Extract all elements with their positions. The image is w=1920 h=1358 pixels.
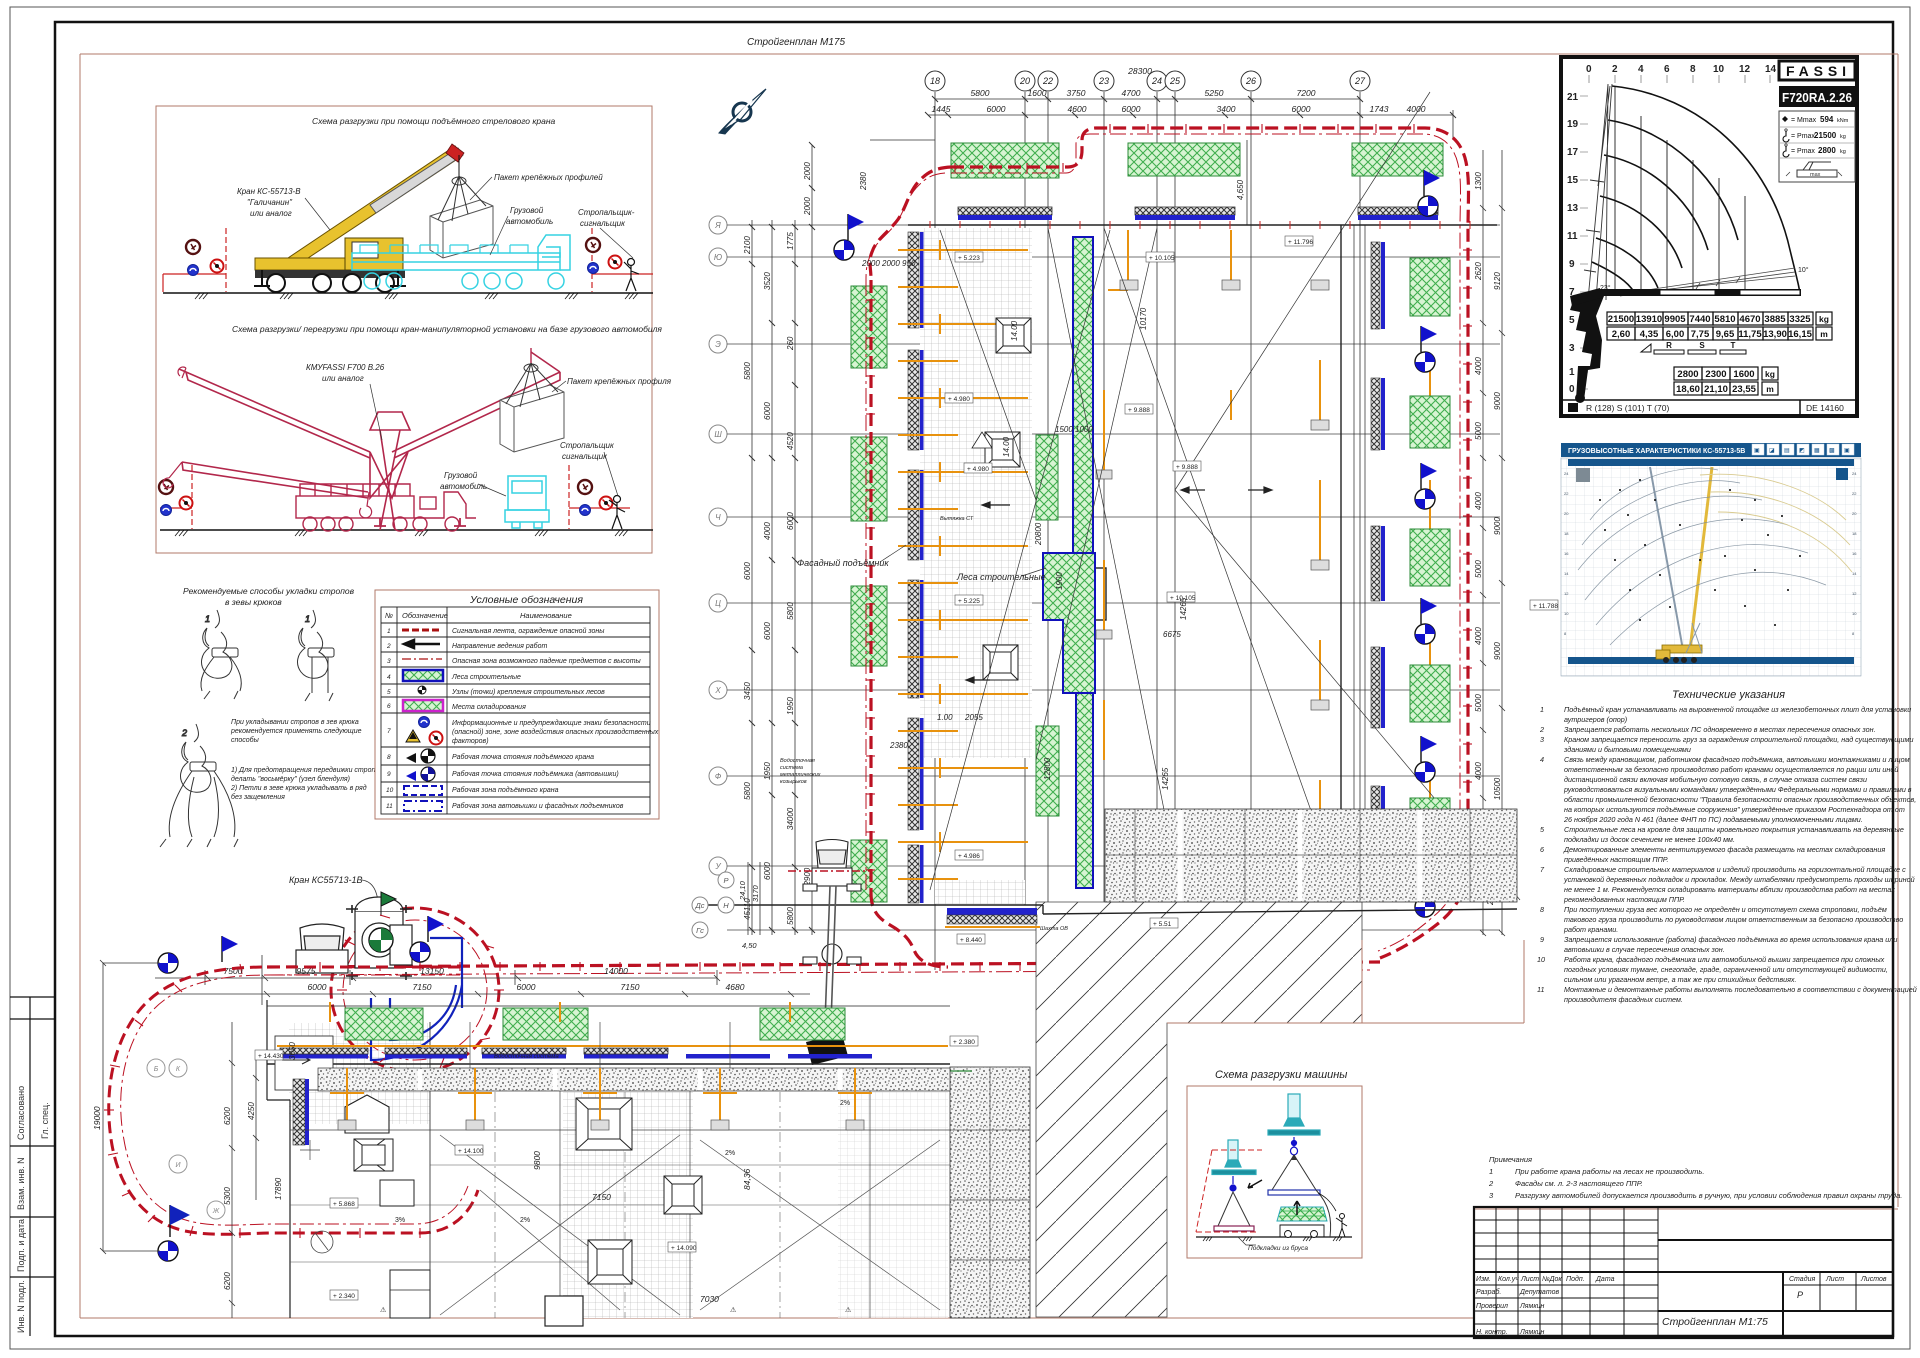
svg-text:не менее 1 м. Рекомендуется ск: не менее 1 м. Рекомендуется складировать… — [1564, 885, 1895, 894]
svg-text:⚠: ⚠ — [380, 1306, 386, 1314]
svg-text:При укладывании стропов в зев: При укладывании стропов в зев крюка — [231, 718, 359, 726]
svg-text:▤: ▤ — [1784, 448, 1790, 454]
svg-text:руководствоваться визуальными: руководствоваться визуальными командами … — [1563, 785, 1912, 794]
svg-text:⚠: ⚠ — [730, 1306, 736, 1314]
svg-text:kNm: kNm — [1837, 118, 1849, 124]
svg-text:7: 7 — [387, 728, 391, 735]
svg-text:Кран КС55713-1В: Кран КС55713-1В — [289, 875, 363, 885]
svg-text:9905: 9905 — [1664, 314, 1686, 325]
svg-text:2380: 2380 — [889, 741, 908, 750]
svg-text:▣: ▣ — [1844, 448, 1850, 454]
svg-text:5000: 5000 — [1474, 694, 1483, 712]
svg-text:3520: 3520 — [763, 272, 772, 290]
svg-text:= Pmax: = Pmax — [1791, 148, 1815, 155]
svg-text:16: 16 — [1564, 551, 1569, 556]
svg-text:3885: 3885 — [1764, 314, 1786, 325]
svg-text:Гс: Гс — [696, 926, 704, 935]
svg-text:3050: 3050 — [288, 1042, 297, 1060]
svg-text:Подъёмный кран устанавливать н: Подъёмный кран устанавливать на выровнен… — [1564, 705, 1911, 714]
svg-text:4,650: 4,650 — [1236, 179, 1245, 200]
svg-text:1950: 1950 — [786, 697, 795, 715]
svg-text:Строительные леса на кровле дл: Строительные леса на кровле для защиты к… — [1564, 825, 1904, 834]
svg-text:11: 11 — [1537, 985, 1544, 994]
svg-text:7,75: 7,75 — [1691, 329, 1710, 340]
svg-text:22: 22 — [1042, 76, 1053, 86]
svg-text:11: 11 — [386, 803, 393, 810]
svg-text:1445: 1445 — [932, 104, 951, 114]
svg-text:3325: 3325 — [1789, 314, 1811, 325]
svg-text:приведённых настоящим ППР.: приведённых настоящим ППР. — [1564, 855, 1668, 864]
svg-text:автомобиль: автомобиль — [440, 482, 487, 491]
svg-text:22: 22 — [1564, 491, 1569, 496]
svg-text:4670: 4670 — [1739, 314, 1760, 325]
svg-text:R: R — [1666, 341, 1672, 350]
svg-text:Разгрузку автомобилей допускае: Разгрузку автомобилей допускается произв… — [1515, 1191, 1902, 1200]
svg-text:области промышленной безопасно: области промышленной безопасности "Прави… — [1564, 795, 1916, 804]
svg-text:9120: 9120 — [1493, 272, 1502, 290]
svg-text:сильном или ураганном ветре, а: сильном или ураганном ветре, а так же пр… — [1564, 975, 1797, 984]
svg-text:или аналог: или аналог — [250, 209, 292, 218]
svg-text:Складирование строительных мат: Складирование строительных материалов и … — [1564, 865, 1906, 874]
svg-text:+ 14.430: + 14.430 — [258, 1053, 284, 1060]
svg-text:kg: kg — [1819, 314, 1829, 324]
svg-text:10°: 10° — [1798, 266, 1809, 274]
svg-text:6: 6 — [1540, 845, 1544, 854]
svg-text:2: 2 — [386, 643, 391, 650]
svg-text:рекомендуется применять следую: рекомендуется применять следующие — [230, 727, 362, 735]
svg-text:дистанционной связи включая мо: дистанционной связи включая мобильную со… — [1564, 775, 1867, 784]
svg-text:4000: 4000 — [1407, 104, 1426, 114]
svg-text:сигнальщик: сигнальщик — [580, 219, 626, 228]
svg-text:№: № — [385, 611, 393, 620]
svg-text:25: 25 — [1169, 76, 1181, 86]
svg-text:6200: 6200 — [223, 1107, 232, 1125]
svg-text:Места складирования: Места складирования — [452, 703, 526, 711]
svg-text:Монтажные и демонтажные работы: Монтажные и демонтажные работы выполнять… — [1564, 985, 1917, 994]
svg-text:9000: 9000 — [1493, 642, 1502, 660]
svg-text:9800: 9800 — [532, 1151, 542, 1170]
svg-text:Связь между крановщиком, работ: Связь между крановщиком, работником фаса… — [1564, 755, 1910, 764]
svg-text:Р: Р — [1797, 1290, 1803, 1300]
svg-text:◩: ◩ — [1799, 448, 1805, 454]
svg-text:1.00: 1.00 — [937, 713, 953, 722]
svg-text:4,50: 4,50 — [742, 941, 757, 950]
svg-text:⚠: ⚠ — [845, 1306, 851, 1314]
svg-text:рекомендованных настоящим ППР.: рекомендованных настоящим ППР. — [1563, 895, 1685, 904]
svg-text:11,75: 11,75 — [1738, 329, 1762, 340]
svg-text:(опасной) зоне, зоне воздейств: (опасной) зоне, зоне воздействия опасных… — [452, 728, 659, 736]
svg-text:такового груза производить по: такового груза производить по руководств… — [1564, 915, 1903, 924]
svg-text:5250: 5250 — [1205, 88, 1224, 98]
svg-text:При поступлении груза вес кото: При поступлении груза вес которого не оп… — [1564, 905, 1887, 914]
svg-text:8: 8 — [387, 754, 391, 761]
svg-text:20: 20 — [1019, 76, 1030, 86]
svg-text:14.00: 14.00 — [1002, 436, 1011, 457]
svg-text:КМУFASSI F700 B.26: КМУFASSI F700 B.26 — [306, 363, 385, 372]
svg-text:= Pmax: = Pmax — [1791, 133, 1815, 140]
svg-text:◪: ◪ — [1769, 448, 1775, 454]
svg-text:+ 11.796: + 11.796 — [1288, 239, 1313, 246]
svg-text:F720RA.2.26: F720RA.2.26 — [1782, 91, 1852, 105]
svg-text:Обозначение: Обозначение — [402, 611, 448, 620]
svg-text:14.00: 14.00 — [1010, 320, 1019, 341]
svg-text:13910: 13910 — [1636, 314, 1662, 325]
svg-text:2) Петли в зеве крюка укладыва: 2) Петли в зеве крюка укладывать в ряд — [230, 784, 367, 792]
svg-text:Изм.: Изм. — [1476, 1276, 1491, 1283]
svg-text:1) Для предотвращения передвиж: 1) Для предотвращения передвижки стропа — [231, 766, 379, 774]
svg-text:1: 1 — [1489, 1167, 1493, 1176]
svg-text:2620: 2620 — [1474, 262, 1483, 281]
svg-text:12: 12 — [1564, 591, 1569, 596]
svg-text:+ 2.380: + 2.380 — [953, 1039, 975, 1046]
svg-text:4: 4 — [387, 674, 391, 681]
svg-text:2,60: 2,60 — [1612, 329, 1631, 340]
svg-text:9: 9 — [1540, 935, 1544, 944]
svg-text:6000: 6000 — [763, 402, 772, 420]
svg-text:5800: 5800 — [786, 907, 795, 925]
svg-text:2: 2 — [1488, 1179, 1494, 1188]
svg-text:без защемления: без защемления — [231, 793, 285, 801]
svg-text:2800: 2800 — [1677, 369, 1698, 380]
svg-text:работ кранами.: работ кранами. — [1563, 925, 1618, 934]
svg-text:У: У — [714, 862, 721, 871]
svg-text:Р: Р — [723, 876, 728, 885]
svg-text:6000: 6000 — [517, 982, 536, 992]
svg-text:6000: 6000 — [987, 104, 1006, 114]
svg-text:6,00: 6,00 — [1666, 329, 1685, 340]
svg-text:ответственным за безопасно про: ответственным за безопасно производство … — [1564, 765, 1898, 774]
svg-text:+ 5.225: + 5.225 — [958, 598, 980, 605]
svg-text:Информационные и предупреждающ: Информационные и предупреждающие знаки б… — [452, 719, 651, 727]
svg-text:DE 14160: DE 14160 — [1806, 403, 1844, 413]
svg-text:5800: 5800 — [743, 362, 752, 380]
svg-text:594: 594 — [1820, 115, 1834, 124]
svg-text:kg: kg — [1840, 134, 1846, 140]
svg-text:1: 1 — [1569, 367, 1575, 378]
svg-text:Фасады см. л. 2-3 настоящего П: Фасады см. л. 2-3 настоящего ППР. — [1515, 1179, 1643, 1188]
svg-text:5000: 5000 — [1474, 560, 1483, 578]
svg-text:2300: 2300 — [1705, 369, 1726, 380]
svg-text:Ж: Ж — [212, 1208, 220, 1215]
svg-text:9: 9 — [387, 771, 391, 778]
svg-text:21500: 21500 — [1814, 131, 1837, 140]
svg-text:на которых используются подъём: на которых используются подъёмные сооруж… — [1564, 805, 1905, 814]
svg-text:Ю: Ю — [714, 253, 722, 262]
svg-text:Ц: Ц — [715, 599, 721, 608]
svg-text:Б: Б — [154, 1066, 159, 1073]
svg-text:2000 2000 950: 2000 2000 950 — [861, 259, 916, 268]
svg-text:Краном запрещается переносить: Краном запрещается переносить груз за ог… — [1564, 735, 1913, 744]
svg-text:S: S — [1699, 341, 1705, 350]
svg-text:Рекомендуемые способы укладки: Рекомендуемые способы укладки стропов — [183, 586, 355, 596]
svg-text:+ 11.788: + 11.788 — [1533, 603, 1558, 610]
svg-text:Пакет крепёжных профилей: Пакет крепёжных профилей — [494, 173, 603, 182]
svg-text:10500: 10500 — [1493, 777, 1502, 800]
svg-text:24: 24 — [1852, 471, 1857, 476]
svg-text:Стропальщик: Стропальщик — [560, 441, 615, 450]
svg-text:7150: 7150 — [592, 1192, 611, 1202]
svg-text:Н: Н — [723, 901, 729, 910]
svg-text:20: 20 — [1564, 511, 1569, 516]
svg-text:Стройгенплан М175: Стройгенплан М175 — [747, 37, 845, 48]
svg-text:Стройгенплан М1:75: Стройгенплан М1:75 — [1662, 1316, 1768, 1328]
svg-text:+ 4.980: + 4.980 — [967, 466, 989, 473]
svg-text:14000: 14000 — [604, 966, 628, 976]
svg-text:Запрещается работать нескольки: Запрещается работать нескольких ПС однов… — [1564, 725, 1876, 734]
svg-text:1500 1000: 1500 1000 — [1055, 425, 1093, 434]
svg-text:5810: 5810 — [1714, 314, 1735, 325]
svg-text:Дата: Дата — [1595, 1276, 1615, 1283]
svg-text:+ 9.888: + 9.888 — [1128, 407, 1150, 414]
svg-text:27: 27 — [1354, 76, 1366, 86]
svg-text:3450: 3450 — [743, 682, 752, 700]
svg-text:4700: 4700 — [1122, 88, 1141, 98]
svg-text:10: 10 — [1713, 64, 1725, 75]
svg-text:Сигнальная лента, ограждение о: Сигнальная лента, ограждение опасной зон… — [452, 627, 605, 635]
svg-text:2%: 2% — [520, 1217, 530, 1224]
svg-text:10: 10 — [386, 787, 394, 794]
svg-text:2: 2 — [181, 728, 187, 738]
svg-text:3: 3 — [1540, 735, 1544, 744]
svg-text:Подкладки из бруса: Подкладки из бруса — [1248, 1244, 1308, 1252]
svg-text:Листов: Листов — [1860, 1276, 1887, 1283]
svg-text:Э: Э — [715, 340, 721, 349]
svg-text:9,65: 9,65 — [1716, 329, 1735, 340]
svg-text:7150: 7150 — [621, 982, 640, 992]
svg-text:4: 4 — [1540, 755, 1544, 764]
svg-text:система: система — [780, 765, 803, 771]
svg-text:4250: 4250 — [247, 1102, 256, 1120]
svg-text:Фасадный подъёмник: Фасадный подъёмник — [797, 558, 889, 568]
svg-text:Подп.: Подп. — [1566, 1275, 1585, 1283]
svg-text:Водосточная система: Водосточная система — [494, 1054, 559, 1060]
svg-text:Инв. N подл.: Инв. N подл. — [16, 1280, 26, 1333]
svg-text:Грузовой: Грузовой — [510, 206, 544, 215]
svg-text:2055: 2055 — [964, 713, 983, 722]
svg-text:Рабочая зона подъёмного крана: Рабочая зона подъёмного крана — [452, 786, 559, 794]
svg-text:Схема разгрузки/ перегрузки пр: Схема разгрузки/ перегрузки при помощи к… — [232, 324, 662, 334]
svg-text:1600: 1600 — [1733, 369, 1754, 380]
svg-text:5: 5 — [1569, 315, 1575, 326]
svg-text:Наименование: Наименование — [520, 611, 572, 620]
svg-text:21,10: 21,10 — [1704, 384, 1728, 395]
svg-text:ГРУЗОВЫСОТНЫЕ ХАРАКТЕРИСТИКИ К: ГРУЗОВЫСОТНЫЕ ХАРАКТЕРИСТИКИ КС-55713-5В — [1568, 448, 1745, 455]
svg-text:m: m — [1766, 384, 1774, 394]
svg-text:Примечания: Примечания — [1489, 1155, 1532, 1164]
svg-text:Ч: Ч — [715, 513, 721, 522]
svg-text:Схема разгрузки при помощи под: Схема разгрузки при помощи подъёмного ст… — [312, 116, 556, 126]
svg-text:m: m — [1820, 329, 1828, 339]
svg-text:сигнальщик: сигнальщик — [562, 452, 608, 461]
svg-text:28300: 28300 — [1127, 66, 1152, 76]
svg-text:19: 19 — [1567, 119, 1579, 130]
svg-text:19000: 19000 — [92, 1106, 102, 1130]
svg-text:6000: 6000 — [763, 622, 772, 640]
svg-text:21500: 21500 — [1608, 314, 1634, 325]
svg-text:16: 16 — [1852, 551, 1857, 556]
svg-text:16,15: 16,15 — [1788, 329, 1812, 340]
svg-text:4000: 4000 — [1474, 357, 1483, 375]
svg-text:+ 2.340: + 2.340 — [333, 1293, 355, 1300]
svg-text:max: max — [1810, 172, 1821, 178]
svg-text:автовышки в случае пересечения: автовышки в случае пересечения опасных з… — [1564, 945, 1725, 954]
svg-text:12: 12 — [1739, 64, 1751, 75]
svg-text:24,10: 24,10 — [738, 880, 747, 901]
svg-text:Разраб.: Разраб. — [1476, 1288, 1501, 1296]
svg-text:Ш: Ш — [714, 430, 722, 439]
svg-text:Депутатов: Депутатов — [1519, 1289, 1559, 1296]
svg-text:+ 5.223: + 5.223 — [958, 255, 980, 262]
svg-text:Взам. инв. N: Взам. инв. N — [16, 1157, 26, 1210]
svg-text:Кол.уч: Кол.уч — [1498, 1276, 1519, 1283]
svg-text:14265: 14265 — [1179, 597, 1188, 620]
svg-text:+ 5.51: + 5.51 — [1153, 921, 1172, 928]
svg-text:9: 9 — [1569, 259, 1575, 270]
svg-text:8: 8 — [1690, 64, 1696, 75]
svg-text:установкой деревянных подкладо: установкой деревянных подкладок и прокла… — [1563, 875, 1915, 884]
svg-text:Проверил: Проверил — [1476, 1303, 1508, 1310]
svg-text:10170: 10170 — [1139, 307, 1148, 330]
svg-text:1300: 1300 — [1474, 172, 1483, 190]
svg-text:6000: 6000 — [308, 982, 327, 992]
svg-text:3170: 3170 — [751, 884, 760, 902]
svg-text:13: 13 — [1567, 203, 1579, 214]
svg-text:Пакет крепёжных профиля: Пакет крепёжных профиля — [567, 377, 672, 386]
svg-text:5800: 5800 — [786, 602, 795, 620]
svg-text:Леса строительные: Леса строительные — [956, 572, 1046, 582]
svg-text:Дс: Дс — [694, 901, 704, 910]
svg-text:2800: 2800 — [1818, 146, 1836, 155]
svg-text:▦: ▦ — [1814, 448, 1820, 454]
svg-text:6: 6 — [387, 703, 391, 710]
svg-text:Ф: Ф — [715, 772, 722, 781]
svg-text:14: 14 — [1564, 571, 1569, 576]
svg-text:автомобиль: автомобиль — [506, 217, 553, 226]
svg-text:в зевы крюков: в зевы крюков — [225, 597, 282, 607]
svg-text:4000: 4000 — [1474, 627, 1483, 645]
svg-text:7150: 7150 — [413, 982, 432, 992]
svg-text:17890: 17890 — [274, 1177, 283, 1200]
svg-text:Рабочая точка стояния подъёмно: Рабочая точка стояния подъёмного крана — [452, 753, 594, 761]
svg-text:Опасная зона возможного падени: Опасная зона возможного падение предмето… — [452, 657, 642, 665]
svg-text:14265: 14265 — [1161, 767, 1170, 790]
svg-text:1: 1 — [205, 614, 210, 624]
svg-text:Лямкин: Лямкин — [1519, 1303, 1545, 1310]
svg-text:T: T — [1731, 341, 1736, 350]
svg-text:2%: 2% — [725, 1150, 735, 1157]
svg-text:6675: 6675 — [1163, 630, 1181, 639]
svg-text:18: 18 — [1852, 531, 1857, 536]
svg-text:Условные обозначения: Условные обозначения — [469, 594, 583, 606]
svg-text:5: 5 — [387, 689, 391, 696]
svg-text:Демонтированные элементы венти: Демонтированные элементы вентилируемого … — [1563, 845, 1885, 854]
svg-text:34000: 34000 — [786, 807, 795, 830]
svg-text:Шахта ОВ: Шахта ОВ — [1040, 926, 1068, 932]
svg-text:18,60: 18,60 — [1676, 384, 1700, 395]
svg-text:Схема разгрузки машины: Схема разгрузки машины — [1215, 1069, 1347, 1081]
svg-text:При работе крана работы на лес: При работе крана работы на лесах не прои… — [1515, 1167, 1704, 1176]
svg-text:6: 6 — [1664, 64, 1670, 75]
svg-text:аутригеров (опор): аутригеров (опор) — [1564, 715, 1627, 724]
svg-text:1: 1 — [1540, 705, 1544, 714]
svg-text:4000: 4000 — [763, 522, 772, 540]
svg-text:5800: 5800 — [743, 782, 752, 800]
svg-text:+ 5.868: + 5.868 — [333, 1201, 355, 1208]
svg-text:18: 18 — [930, 76, 940, 86]
svg-text:24: 24 — [1151, 76, 1162, 86]
svg-text:4000: 4000 — [1474, 492, 1483, 510]
svg-text:погодных условиях тумане, снег: погодных условиях тумане, снегопаде, гра… — [1564, 965, 1888, 974]
svg-text:4: 4 — [1638, 64, 1644, 75]
svg-text:14: 14 — [1852, 571, 1857, 576]
svg-text:"Галичанин": "Галичанин" — [247, 198, 293, 207]
svg-text:6000: 6000 — [743, 562, 752, 580]
svg-text:kg: kg — [1840, 149, 1846, 155]
svg-text:4,35: 4,35 — [1640, 329, 1659, 340]
svg-text:Грузовой: Грузовой — [444, 471, 478, 480]
svg-text:6000: 6000 — [1292, 104, 1311, 114]
svg-text:10: 10 — [1564, 611, 1569, 616]
svg-text:Х: Х — [714, 686, 721, 695]
svg-text:260: 260 — [786, 336, 795, 351]
svg-text:+ 8.440: + 8.440 — [960, 937, 982, 944]
svg-text:Подп. и дата: Подп. и дата — [16, 1219, 26, 1272]
svg-text:17: 17 — [1567, 147, 1579, 158]
svg-text:Рабочая зона автовышки и фасад: Рабочая зона автовышки и фасадных подъем… — [452, 802, 624, 810]
svg-text:0: 0 — [1586, 64, 1592, 75]
svg-text:Леса строительные: Леса строительные — [451, 674, 521, 681]
svg-text:2%: 2% — [840, 1100, 850, 1107]
svg-text:3%: 3% — [395, 1217, 405, 1224]
svg-text:20: 20 — [1852, 511, 1857, 516]
svg-text:1: 1 — [305, 614, 310, 624]
svg-text:14: 14 — [1765, 64, 1777, 75]
svg-text:26: 26 — [1245, 76, 1256, 86]
svg-text:или аналог: или аналог — [322, 374, 364, 383]
svg-text:24: 24 — [1564, 471, 1569, 476]
svg-text:Лист: Лист — [1825, 1276, 1844, 1283]
svg-text:факторов): факторов) — [452, 738, 489, 745]
svg-text:5000: 5000 — [1474, 422, 1483, 440]
svg-text:15: 15 — [1567, 175, 1579, 186]
svg-text:2100: 2100 — [743, 236, 752, 255]
svg-text:kg: kg — [1765, 369, 1775, 379]
svg-text:5300: 5300 — [223, 1187, 232, 1205]
svg-text:Гл. спец.: Гл. спец. — [40, 1102, 50, 1139]
svg-text:Работа крана, фасадного подъём: Работа крана, фасадного подъёмника или а… — [1564, 955, 1885, 964]
svg-text:козырьков: козырьков — [780, 779, 807, 785]
svg-text:13,90: 13,90 — [1763, 329, 1787, 340]
svg-text:3750: 3750 — [1067, 88, 1086, 98]
svg-text:Я: Я — [714, 221, 721, 230]
svg-text:3: 3 — [387, 658, 391, 665]
svg-text:6000: 6000 — [786, 512, 795, 530]
svg-text:21: 21 — [1567, 92, 1579, 103]
svg-text:84,36: 84,36 — [742, 1168, 752, 1190]
svg-text:+ 4.980: + 4.980 — [948, 396, 970, 403]
svg-text:+ 10.105: + 10.105 — [1149, 255, 1175, 262]
svg-text:Кран КС-55713-В: Кран КС-55713-В — [237, 187, 301, 196]
svg-text:Водосточная: Водосточная — [780, 758, 815, 764]
svg-text:1: 1 — [387, 628, 391, 635]
svg-text:10: 10 — [1852, 611, 1857, 616]
svg-text:2000: 2000 — [803, 162, 812, 181]
svg-text:Лямкин: Лямкин — [1519, 1329, 1545, 1336]
svg-text:7200: 7200 — [1297, 88, 1316, 98]
svg-text:8: 8 — [1540, 905, 1544, 914]
svg-text:3400: 3400 — [1217, 104, 1236, 114]
svg-text:3: 3 — [1569, 343, 1575, 354]
